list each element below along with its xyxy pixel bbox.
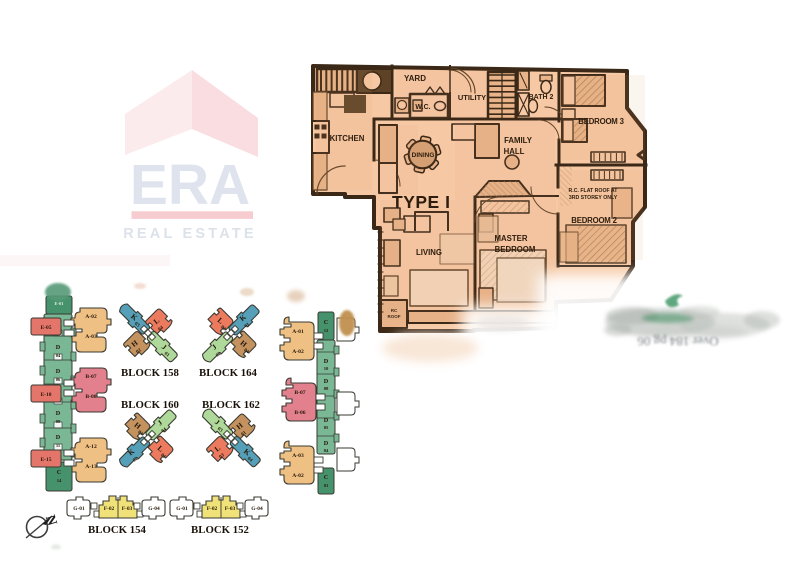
svg-text:B-07: B-07: [85, 374, 96, 380]
svg-text:BEDROOM: BEDROOM: [495, 245, 536, 254]
svg-text:E-10: E-10: [41, 392, 52, 398]
svg-text:BLOCK 154: BLOCK 154: [88, 524, 146, 536]
svg-text:G-01: G-01: [73, 506, 85, 512]
svg-text:11: 11: [56, 443, 61, 448]
svg-text:A-03: A-03: [85, 334, 97, 340]
svg-text:BATH 2: BATH 2: [529, 94, 554, 101]
svg-text:08: 08: [324, 386, 329, 391]
svg-text:D: D: [56, 344, 61, 351]
svg-text:12: 12: [324, 328, 329, 333]
svg-text:G-04: G-04: [251, 506, 263, 512]
svg-text:E-01: E-01: [55, 301, 65, 306]
svg-text:04: 04: [56, 353, 61, 358]
svg-text:FAMILY: FAMILY: [504, 136, 533, 145]
svg-text:DINING: DINING: [412, 152, 435, 159]
svg-text:05: 05: [324, 425, 329, 430]
svg-text:F-03: F-03: [225, 506, 236, 512]
svg-text:KITCHEN: KITCHEN: [330, 134, 365, 143]
svg-text:C: C: [324, 319, 328, 326]
svg-text:A-02: A-02: [292, 349, 304, 355]
svg-text:09: 09: [56, 419, 61, 424]
svg-text:BLOCK 152: BLOCK 152: [191, 524, 249, 536]
svg-text:ERA: ERA: [130, 153, 250, 217]
svg-text:R.C. FLAT ROOF AT: R.C. FLAT ROOF AT: [569, 188, 619, 194]
svg-text:A-03: A-03: [292, 453, 304, 459]
svg-text:W.C.: W.C.: [415, 104, 430, 111]
svg-text:G-01: G-01: [176, 506, 188, 512]
svg-text:04: 04: [324, 448, 329, 453]
svg-text:D: D: [324, 417, 329, 424]
svg-text:MASTER: MASTER: [495, 234, 528, 243]
svg-text:01: 01: [324, 483, 329, 488]
svg-text:D: D: [56, 368, 61, 375]
svg-text:HALL: HALL: [504, 147, 525, 156]
svg-text:F-02: F-02: [207, 506, 218, 512]
svg-text:E-05: E-05: [41, 325, 52, 331]
svg-text:LIVING: LIVING: [416, 248, 442, 257]
svg-text:BEDROOM 3: BEDROOM 3: [578, 117, 624, 126]
svg-text:C: C: [324, 474, 328, 481]
svg-text:Over 184 pg 06: Over 184 pg 06: [637, 334, 719, 349]
svg-text:G-04: G-04: [148, 506, 160, 512]
svg-text:F-03: F-03: [122, 506, 133, 512]
svg-text:10: 10: [324, 366, 329, 371]
svg-text:REAL ESTATE: REAL ESTATE: [123, 226, 257, 242]
svg-text:3RD STOREY ONLY: 3RD STOREY ONLY: [569, 195, 618, 201]
svg-text:06: 06: [56, 377, 61, 382]
svg-text:TYPE I: TYPE I: [392, 192, 450, 212]
svg-text:A-02: A-02: [292, 473, 304, 479]
svg-text:BLOCK 160: BLOCK 160: [121, 399, 179, 411]
svg-text:D: D: [324, 378, 329, 385]
svg-text:BLOCK 164: BLOCK 164: [199, 367, 257, 379]
svg-text:A-01: A-01: [292, 329, 304, 335]
svg-text:YARD: YARD: [404, 74, 426, 83]
svg-text:B-08: B-08: [85, 394, 96, 400]
svg-text:A-12: A-12: [85, 444, 97, 450]
svg-text:D: D: [56, 410, 61, 417]
svg-text:A-02: A-02: [85, 314, 97, 320]
svg-text:C: C: [57, 469, 61, 476]
svg-text:E-15: E-15: [41, 457, 52, 463]
svg-text:F-02: F-02: [104, 506, 115, 512]
svg-text:UTILITY: UTILITY: [458, 93, 486, 102]
svg-text:B-07: B-07: [294, 390, 305, 396]
svg-text:D: D: [56, 434, 61, 441]
svg-text:D: D: [324, 440, 329, 447]
svg-text:BLOCK 158: BLOCK 158: [121, 367, 179, 379]
svg-text:D: D: [324, 358, 329, 365]
svg-text:14: 14: [57, 478, 62, 483]
svg-text:A-13: A-13: [85, 464, 97, 470]
svg-text:BLOCK 162: BLOCK 162: [202, 399, 260, 411]
svg-text:BEDROOM 2: BEDROOM 2: [571, 216, 617, 225]
svg-text:B-06: B-06: [294, 410, 305, 416]
